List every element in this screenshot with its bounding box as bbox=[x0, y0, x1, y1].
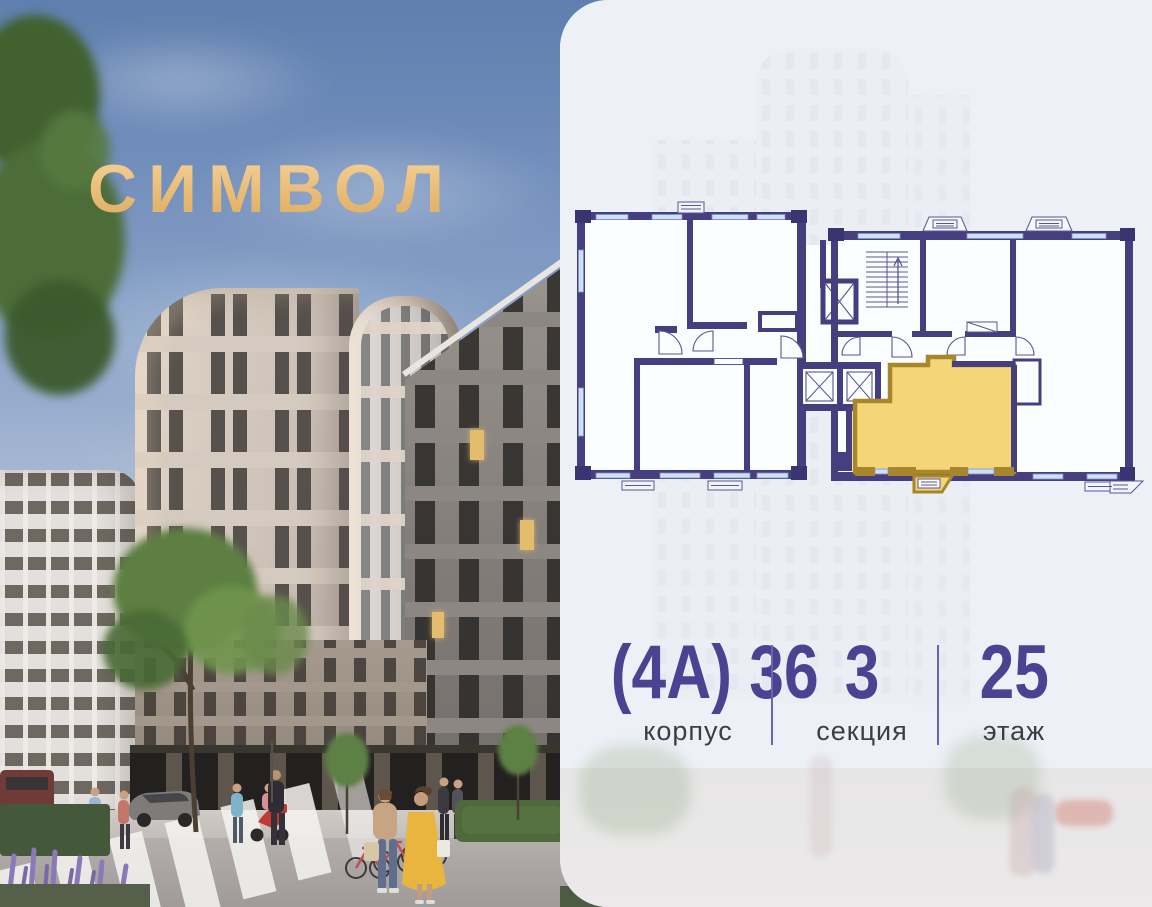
section-number: 3 bbox=[845, 640, 880, 706]
project-logo: СИМВОЛ bbox=[88, 150, 488, 240]
apartment-info-panel: (4А) 36 корпус 3 секция 25 этаж bbox=[560, 0, 1152, 907]
screenshot-root: СИМВОЛ bbox=[0, 0, 1152, 907]
section-label: секция bbox=[802, 716, 922, 747]
building-info: (4А) 36 корпус bbox=[588, 640, 788, 747]
floor-plan-area bbox=[560, 190, 1152, 520]
faint-figure bbox=[1010, 788, 1036, 876]
floor-number: 25 bbox=[979, 640, 1048, 706]
tree-foliage bbox=[5, 280, 115, 395]
faint-figure bbox=[810, 755, 832, 857]
building-number: (4А) 36 bbox=[611, 640, 819, 706]
planter-hedge bbox=[0, 804, 110, 856]
apartment-meta: (4А) 36 корпус 3 секция 25 этаж bbox=[560, 640, 1152, 770]
floor-info: 25 этаж bbox=[954, 640, 1074, 747]
divider bbox=[937, 645, 939, 745]
floor-label: этаж bbox=[954, 716, 1074, 747]
section-info: 3 секция bbox=[802, 640, 922, 747]
faint-figure bbox=[1034, 794, 1054, 874]
faint-car bbox=[1055, 800, 1113, 826]
divider bbox=[771, 645, 773, 745]
gray-car bbox=[128, 791, 200, 827]
floor-plan bbox=[560, 190, 1152, 520]
pedestrian-dark bbox=[268, 770, 285, 845]
building-label: корпус bbox=[588, 716, 788, 747]
